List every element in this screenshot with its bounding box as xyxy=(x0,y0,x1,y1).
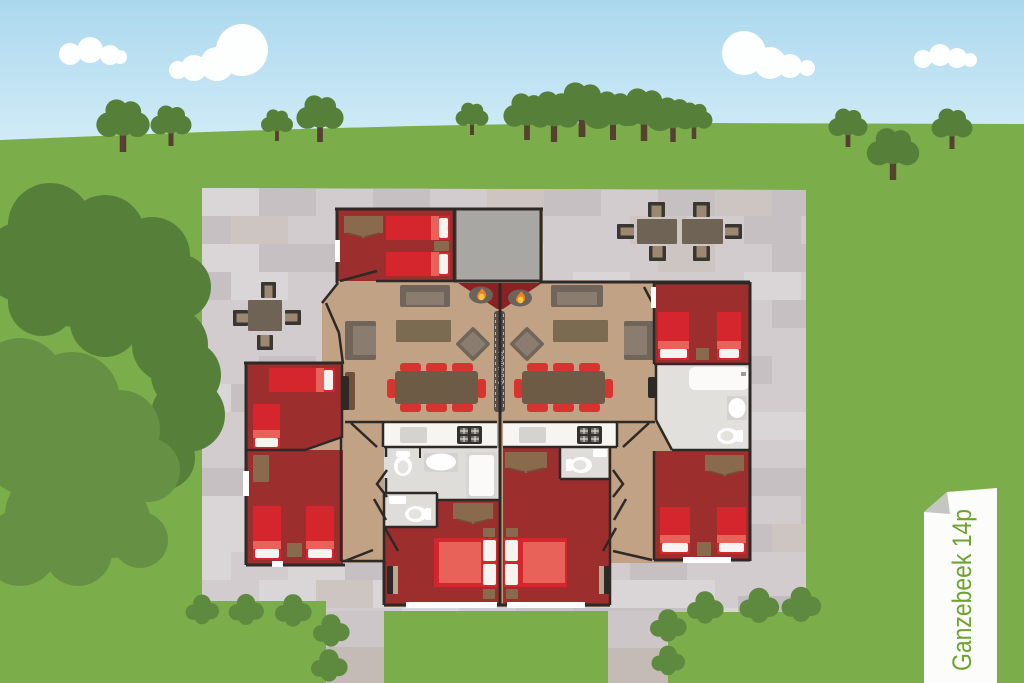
svg-text:Ganzebeek 14p: Ganzebeek 14p xyxy=(947,509,977,671)
